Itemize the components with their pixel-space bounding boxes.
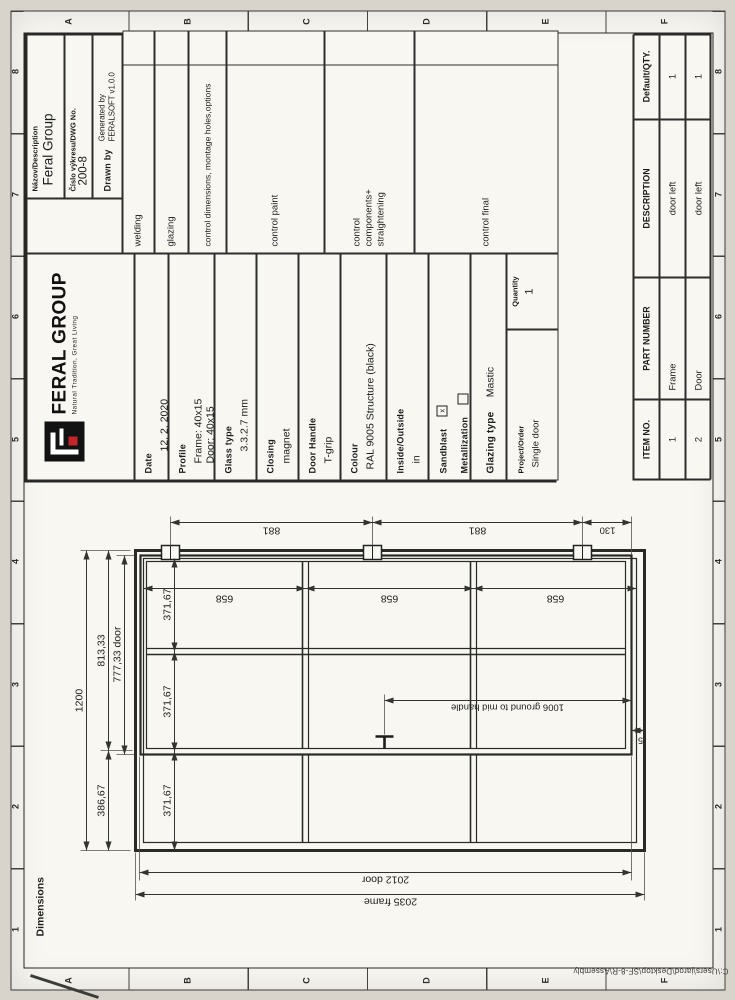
project-order-label: Project/Order [516,425,525,473]
parts-header-part-number: PART NUMBER [633,277,659,399]
checklist-row-glazing: glazing [154,30,188,253]
scan-pen-mark [30,975,98,997]
parts-cell-qty: 1 [685,33,711,119]
parts-cell-item-no: 2 [685,399,711,479]
logo-tagline: Natural Tradition, Great Living [71,272,78,414]
door-handle-label: Door Handle [307,417,317,473]
profile-label: Profile [177,444,187,473]
parts-header-description: DESCRIPTION [633,119,659,277]
file-path-footer: C:\Users\jarod\Desktop\SF-8-R\Assembly [496,966,728,975]
profile-cell: Profile Frame: 40x15 Door: 40x15 [168,253,214,480]
door-handle-value: T-grip [322,260,334,473]
quantity-label: Quantity [510,260,519,322]
parts-cell-item-no: 1 [659,399,685,479]
dim-col-width: 371,67 [161,588,173,620]
name-value: Feral Group [40,41,55,191]
quantity-value: 1 [523,260,535,322]
drawn-by-cell: Drawn by Generated by FERALSOFT v1.0.0 [92,34,122,198]
checklist-row-welding: welding [122,30,154,253]
feral-logo-mark-icon [44,421,84,461]
t-grip-handle-symbol [375,736,393,748]
dwg-no-cell: Číslo výkresu/DWG No. 200-8 [64,34,92,198]
dim-row-height: 658 [215,592,233,604]
door-handle-cell: Door Handle T-grip [298,253,340,480]
checklist-signoff-divider [122,64,558,65]
drawn-by-label: Drawn by [102,149,112,191]
dim-total-width: 1200 [73,688,85,712]
checklist-item-label: control components+ straightening [351,164,387,246]
checklist-row-control-paint: control paint [226,30,324,253]
logo-name: FERAL GROUP [50,272,69,414]
date-cell: Date 12. 2. 2020 [134,253,168,480]
checklist-row-control-dimensions: control dimensions, montage holes,option… [188,30,226,253]
dim-door-height: 2012 door [361,873,409,885]
parts-table: ITEM NO. PART NUMBER DESCRIPTION Default… [632,34,710,480]
checklist-row-control-components: control components+ straightening [324,30,414,253]
dim-row-height: 658 [546,592,564,604]
glazing-type-value: Mastic [484,366,496,396]
dwg-no-value: 200-8 [77,41,89,191]
checklist-item-label: control paint [269,194,281,246]
inside-outside-value: in [410,260,422,473]
parts-header-item-no: ITEM NO. [633,399,659,479]
project-order-value: Single door [530,336,541,473]
date-value: 12. 2. 2020 [158,260,168,473]
sandblast-label: Sandblast [438,428,448,473]
dwg-no-label: Číslo výkresu/DWG No. [68,41,77,191]
glass-type-label: Glass type [223,425,233,473]
parts-cell-part-number: Door [685,277,711,399]
dim-col-width: 371,67 [161,784,173,816]
inside-outside-label: Inside/Outside [395,408,405,473]
quantity-cell: Quantity 1 [506,253,558,329]
project-order-cell: Project/Order Single door [506,329,558,480]
drawing-sheet-rotated: 1 2 3 4 5 6 7 8 1 2 3 4 5 6 7 8 A B C D … [0,0,735,1000]
glass-type-cell: Glass type 3.3.2.7 mm [214,253,256,480]
parts-cell-part-number: Frame [659,277,685,399]
feral-group-logo: FERAL GROUP Natural Tradition, Great Liv… [30,260,84,473]
dim-hinge-spacing: 881 [468,524,486,536]
dim-left-width: 386,67 [95,784,107,816]
dim-door-width: 777,33 door [111,625,123,682]
checklist-item-label: glazing [165,216,177,246]
closing-label: Closing [265,439,275,473]
colour-value: RAL 9005 Structure (black) [364,260,376,473]
name-cell: Názov/Description Feral Group [26,34,64,198]
surface-cell: Sandblast x Metallization [428,253,470,480]
sandblast-checkbox: x [436,405,447,416]
metallization-checkbox [457,393,468,404]
checklist-item-label: control final [480,197,492,246]
metallization-label: Metallization [459,416,469,473]
profile-door-value: Door: 40x15 [204,260,214,473]
checklist-row-control-final: control final [414,30,558,253]
blank-cell [26,198,122,253]
title-block: FERAL GROUP Natural Tradition, Great Liv… [24,32,556,482]
dim-row-height: 658 [380,592,398,604]
dim-right-width: 813,33 [95,634,107,666]
colour-label: Colour [349,443,359,473]
date-label: Date [143,453,153,473]
checklist-item-label: control dimensions, montage holes,option… [202,83,213,246]
profile-frame-value: Frame: 40x15 [192,260,204,473]
dim-hinge-spacing: 881 [262,524,280,536]
parts-cell-qty: 1 [659,33,685,119]
dim-col-width: 371,67 [161,685,173,717]
drawn-by-value: Generated by FERALSOFT v1.0.0 [97,47,116,141]
colour-cell: Colour RAL 9005 Structure (black) [340,253,386,480]
inside-outside-cell: Inside/Outside in [386,253,428,480]
checklist-item-label: welding [132,214,144,246]
scanned-drawing-page: 1 2 3 4 5 6 7 8 1 2 3 4 5 6 7 8 A B C D … [0,0,735,1000]
dim-bottom-gap: 5 [637,735,642,745]
glazing-type-cell: Glazing type Mastic [470,253,506,480]
logo-cell: FERAL GROUP Natural Tradition, Great Liv… [26,253,134,480]
parts-cell-description: door left [685,119,711,277]
parts-header-qty: Default/QTY. [633,33,659,119]
closing-cell: Closing magnet [256,253,298,480]
parts-cell-description: door left [659,119,685,277]
glazing-type-label: Glazing type [485,411,496,473]
name-label: Názov/Description [30,41,39,191]
dim-frame-height: 2035 frame [363,895,416,907]
closing-value: magnet [280,260,292,473]
glass-type-value: 3.3.2.7 mm [238,260,250,473]
dim-handle-height: 1006 ground to mid handle [450,701,563,712]
dim-hinge-to-bottom: 130 [599,524,615,535]
